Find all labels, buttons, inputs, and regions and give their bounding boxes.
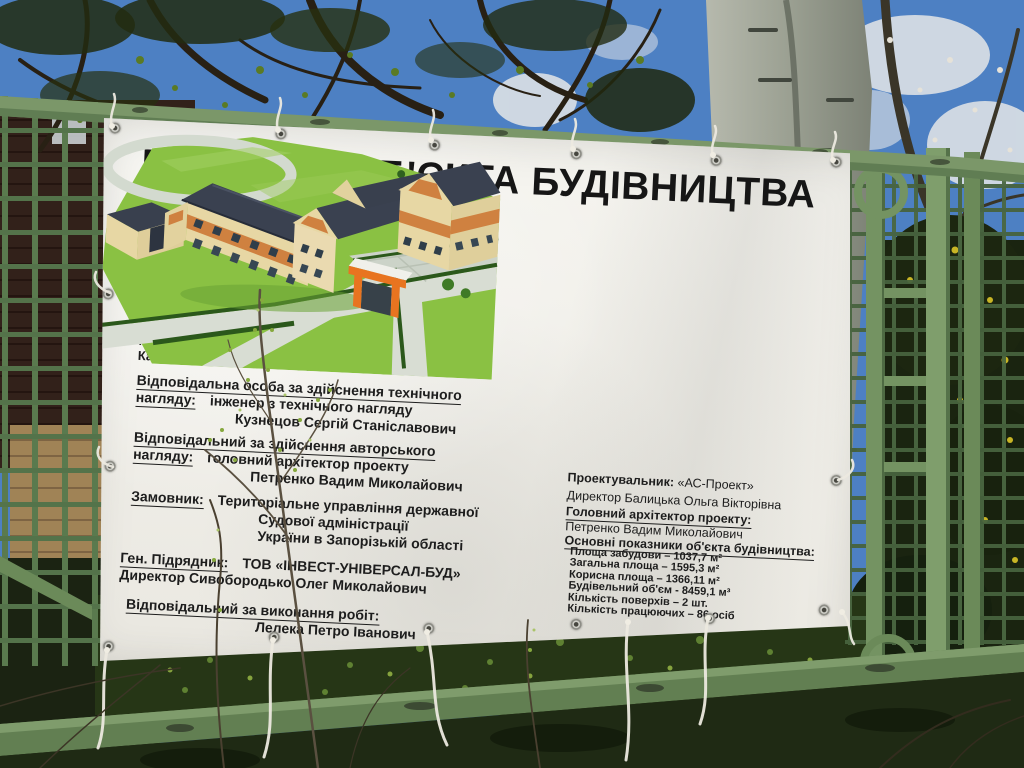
cable-ties [95,94,854,760]
photo-scene: ПАСПОРТ ОБ'ЄКТА БУДІВНИЦТВА «Реконструкц… [0,0,1024,768]
twig-leaves-pale [217,309,536,632]
foreground-twigs [0,290,1024,768]
twig-leaves [208,298,532,652]
foreground-twigs-and-ties [0,0,1024,768]
tie-knots [104,123,845,653]
